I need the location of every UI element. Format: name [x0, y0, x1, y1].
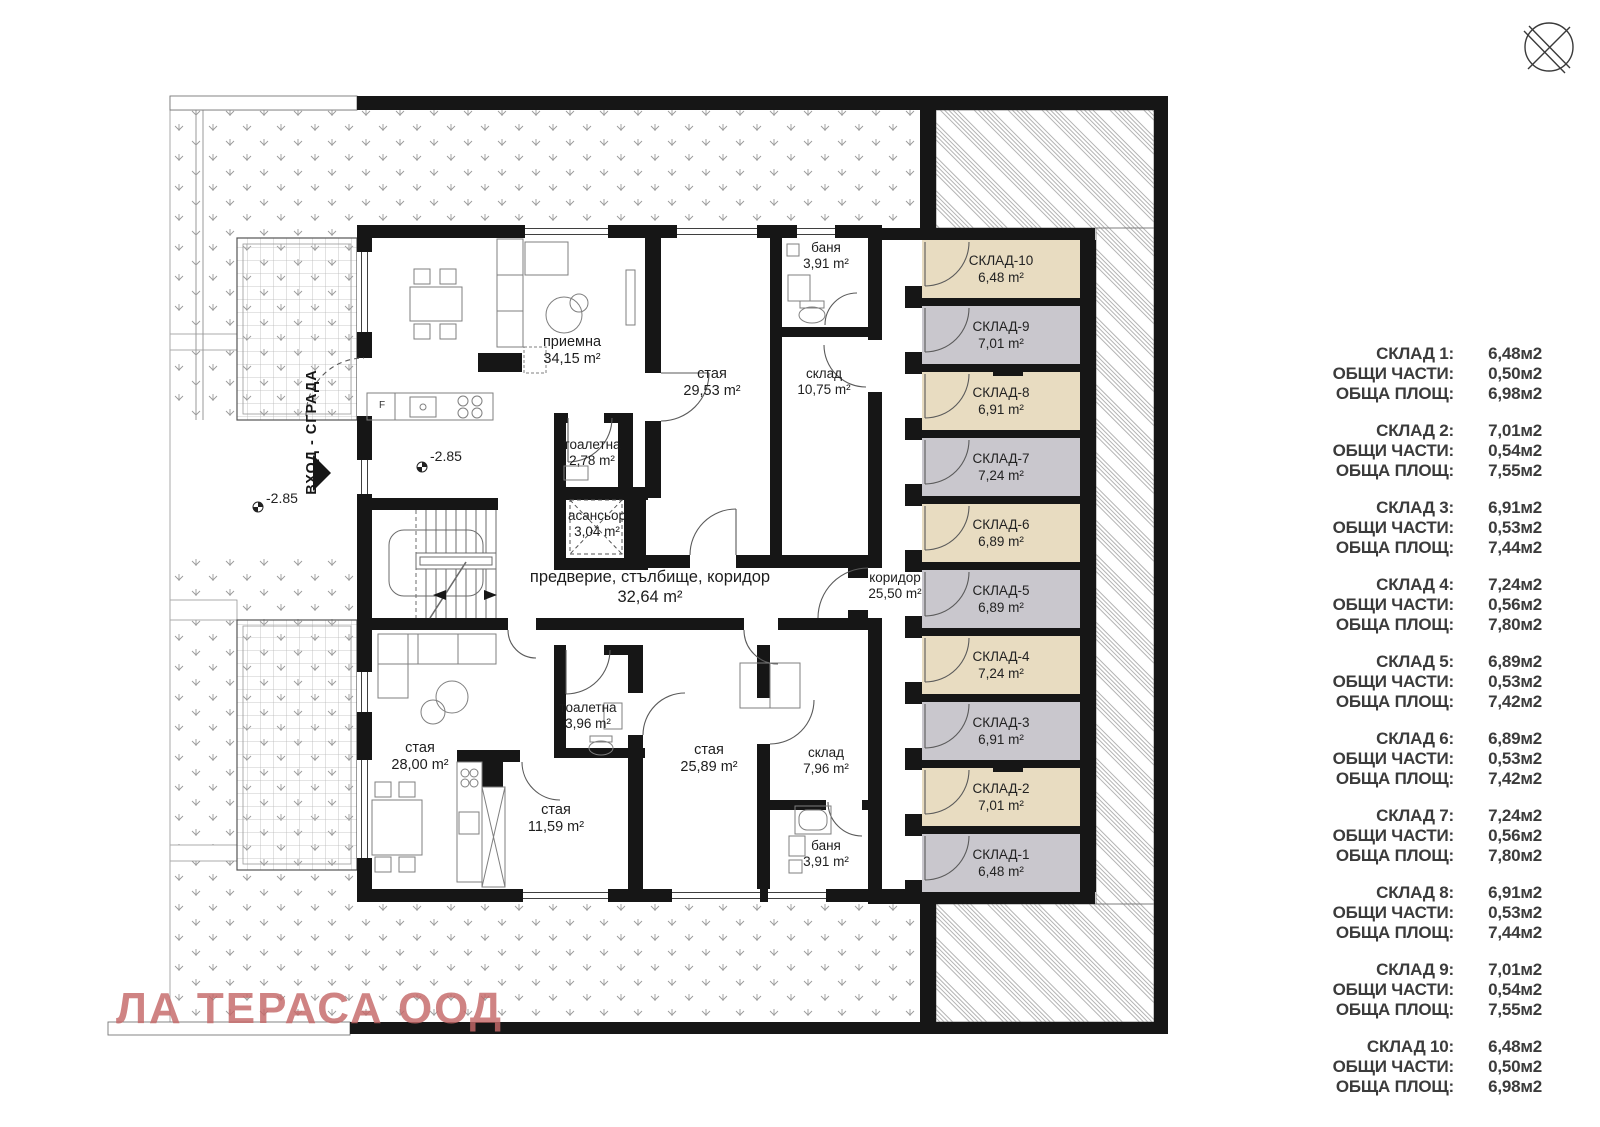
- legend-value: 0,53м2: [1464, 749, 1542, 769]
- legend-group: СКЛАД 3:6,91м2 ОБЩИ ЧАСТИ:0,53м2 ОБЩА ПЛ…: [1278, 498, 1542, 558]
- legend-label: ОБЩА ПЛОЩ:: [1278, 1077, 1464, 1097]
- entrance-label: ВХОД - СГРАДА: [302, 352, 322, 512]
- room-label-toaletna-up: тоалетна 2,78 m²: [532, 437, 652, 469]
- legend-label: ОБЩА ПЛОЩ:: [1278, 923, 1464, 943]
- room-label-staya-28: стая 28,00 m²: [350, 740, 490, 775]
- legend-value: 7,80м2: [1464, 615, 1542, 635]
- legend-value: 7,01м2: [1464, 960, 1542, 980]
- legend-value: 7,24м2: [1464, 806, 1542, 826]
- legend-group: СКЛАД 1:6,48м2 ОБЩИ ЧАСТИ:0,50м2 ОБЩА ПЛ…: [1278, 344, 1542, 404]
- legend-label: ОБЩА ПЛОЩ:: [1278, 846, 1464, 866]
- legend-group: СКЛАД 5:6,89м2 ОБЩИ ЧАСТИ:0,53м2 ОБЩА ПЛ…: [1278, 652, 1542, 712]
- legend-value: 7,42м2: [1464, 769, 1542, 789]
- room-label-sklad-up: склад 10,75 m²: [764, 366, 884, 398]
- legend-label: ОБЩА ПЛОЩ:: [1278, 1000, 1464, 1020]
- legend-value: 6,91м2: [1464, 883, 1542, 903]
- legend-value: 0,53м2: [1464, 518, 1542, 538]
- storage-room-label: СКЛАД-8 6,91 m²: [931, 385, 1071, 419]
- room-label-predverie: предверие, стълбище, коридор 32,64 m²: [520, 568, 780, 608]
- legend-value: 0,54м2: [1464, 441, 1542, 461]
- legend-group: СКЛАД 10:6,48м2 ОБЩИ ЧАСТИ:0,50м2 ОБЩА П…: [1278, 1037, 1542, 1097]
- legend-label: ОБЩИ ЧАСТИ:: [1278, 672, 1464, 692]
- legend-label: СКЛАД 6:: [1278, 729, 1464, 749]
- legend-value: 6,98м2: [1464, 1077, 1542, 1097]
- legend-label: ОБЩИ ЧАСТИ:: [1278, 441, 1464, 461]
- legend-value: 6,91м2: [1464, 498, 1542, 518]
- fridge-label: F: [372, 400, 392, 411]
- legend-value: 6,89м2: [1464, 729, 1542, 749]
- room-label-banya-low: баня 3,91 m²: [766, 838, 886, 870]
- legend-value: 6,98м2: [1464, 384, 1542, 404]
- legend-value: 7,55м2: [1464, 1000, 1542, 1020]
- legend-group: СКЛАД 2:7,01м2 ОБЩИ ЧАСТИ:0,54м2 ОБЩА ПЛ…: [1278, 421, 1542, 481]
- legend-group: СКЛАД 4:7,24м2 ОБЩИ ЧАСТИ:0,56м2 ОБЩА ПЛ…: [1278, 575, 1542, 635]
- legend-group: СКЛАД 7:7,24м2 ОБЩИ ЧАСТИ:0,56м2 ОБЩА ПЛ…: [1278, 806, 1542, 866]
- storage-area-legend: СКЛАД 1:6,48м2 ОБЩИ ЧАСТИ:0,50м2 ОБЩА ПЛ…: [1278, 344, 1542, 1114]
- legend-value: 0,56м2: [1464, 826, 1542, 846]
- legend-value: 7,42м2: [1464, 692, 1542, 712]
- room-label-asansior: асансьор 3,04 m²: [537, 508, 657, 540]
- legend-value: 0,50м2: [1464, 364, 1542, 384]
- storage-room-label: СКЛАД-1 6,48 m²: [931, 847, 1071, 881]
- legend-label: ОБЩА ПЛОЩ:: [1278, 692, 1464, 712]
- watermark: ЛА ТЕРАСА ООД: [116, 984, 503, 1034]
- legend-label: ОБЩА ПЛОЩ:: [1278, 538, 1464, 558]
- legend-value: 7,80м2: [1464, 846, 1542, 866]
- legend-group: СКЛАД 9:7,01м2 ОБЩИ ЧАСТИ:0,54м2 ОБЩА ПЛ…: [1278, 960, 1542, 1020]
- room-label-toaletna-low: тоалетна 3,96 m²: [528, 700, 648, 732]
- storage-room-label: СКЛАД-7 7,24 m²: [931, 451, 1071, 485]
- floor-plan-page: приемна 34,15 m² стая 29,53 m² склад 10,…: [0, 0, 1600, 1127]
- legend-label: ОБЩА ПЛОЩ:: [1278, 384, 1464, 404]
- legend-value: 7,44м2: [1464, 538, 1542, 558]
- legend-label: ОБЩИ ЧАСТИ:: [1278, 595, 1464, 615]
- legend-label: ОБЩИ ЧАСТИ:: [1278, 364, 1464, 384]
- storage-room-label: СКЛАД-2 7,01 m²: [931, 781, 1071, 815]
- legend-value: 7,01м2: [1464, 421, 1542, 441]
- room-label-staya-25: стая 25,89 m²: [639, 742, 779, 777]
- legend-label: СКЛАД 1:: [1278, 344, 1464, 364]
- legend-label: СКЛАД 8:: [1278, 883, 1464, 903]
- north-icon: [1524, 23, 1573, 73]
- legend-label: СКЛАД 4:: [1278, 575, 1464, 595]
- legend-label: ОБЩА ПЛОЩ:: [1278, 769, 1464, 789]
- legend-label: ОБЩИ ЧАСТИ:: [1278, 903, 1464, 923]
- storage-room-label: СКЛАД-4 7,24 m²: [931, 649, 1071, 683]
- storage-room-label: СКЛАД-9 7,01 m²: [931, 319, 1071, 353]
- legend-label: ОБЩИ ЧАСТИ:: [1278, 980, 1464, 1000]
- legend-label: СКЛАД 5:: [1278, 652, 1464, 672]
- legend-value: 6,89м2: [1464, 652, 1542, 672]
- storage-room-label: СКЛАД-5 6,89 m²: [931, 583, 1071, 617]
- storage-room-label: СКЛАД-10 6,48 m²: [931, 253, 1071, 287]
- legend-label: ОБЩА ПЛОЩ:: [1278, 615, 1464, 635]
- room-label-sklad-low: склад 7,96 m²: [766, 745, 886, 777]
- legend-value: 7,44м2: [1464, 923, 1542, 943]
- legend-label: СКЛАД 3:: [1278, 498, 1464, 518]
- room-label-priemna: приемна 34,15 m²: [502, 334, 642, 369]
- room-label-staya-11: стая 11,59 m²: [486, 802, 626, 837]
- legend-value: 0,50м2: [1464, 1057, 1542, 1077]
- level-marker-text: -2.85: [266, 490, 298, 506]
- legend-value: 0,56м2: [1464, 595, 1542, 615]
- legend-label: СКЛАД 2:: [1278, 421, 1464, 441]
- legend-label: СКЛАД 9:: [1278, 960, 1464, 980]
- legend-value: 6,48м2: [1464, 344, 1542, 364]
- legend-label: ОБЩИ ЧАСТИ:: [1278, 518, 1464, 538]
- legend-label: ОБЩИ ЧАСТИ:: [1278, 1057, 1464, 1077]
- room-label-staya-up: стая 29,53 m²: [642, 366, 782, 401]
- storage-room-label: СКЛАД-6 6,89 m²: [931, 517, 1071, 551]
- legend-value: 0,53м2: [1464, 672, 1542, 692]
- legend-group: СКЛАД 8:6,91м2 ОБЩИ ЧАСТИ:0,53м2 ОБЩА ПЛ…: [1278, 883, 1542, 943]
- legend-label: ОБЩИ ЧАСТИ:: [1278, 749, 1464, 769]
- level-marker-text: -2.85: [430, 448, 462, 464]
- legend-value: 7,24м2: [1464, 575, 1542, 595]
- legend-value: 0,54м2: [1464, 980, 1542, 1000]
- legend-group: СКЛАД 6:6,89м2 ОБЩИ ЧАСТИ:0,53м2 ОБЩА ПЛ…: [1278, 729, 1542, 789]
- legend-label: ОБЩИ ЧАСТИ:: [1278, 826, 1464, 846]
- staircase: [389, 510, 497, 618]
- legend-value: 6,48м2: [1464, 1037, 1542, 1057]
- legend-value: 7,55м2: [1464, 461, 1542, 481]
- legend-label: ОБЩА ПЛОЩ:: [1278, 461, 1464, 481]
- legend-label: СКЛАД 10:: [1278, 1037, 1464, 1057]
- legend-value: 0,53м2: [1464, 903, 1542, 923]
- room-label-banya-up: баня 3,91 m²: [766, 240, 886, 272]
- storage-room-label: СКЛАД-3 6,91 m²: [931, 715, 1071, 749]
- legend-label: СКЛАД 7:: [1278, 806, 1464, 826]
